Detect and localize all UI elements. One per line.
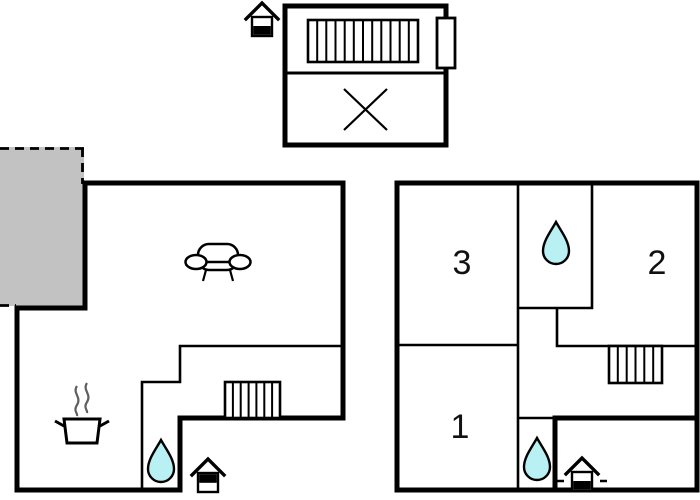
house-door-fill: [199, 474, 217, 483]
terrace-area: [0, 147, 84, 306]
first-floor-plan: 3 2 1: [397, 183, 697, 491]
house-door-fill: [253, 26, 271, 35]
entrance-house-icon: [192, 459, 224, 492]
outer-walls: [397, 183, 697, 490]
room-label-2: 2: [648, 244, 667, 282]
room-label-1: 1: [451, 408, 470, 446]
room-label-3: 3: [453, 244, 472, 282]
pot-body: [64, 419, 100, 443]
ground-floor-plan: [0, 147, 343, 492]
staircase-icon: [308, 20, 418, 62]
sofa-armrest-left: [186, 255, 207, 269]
terrace-fill: [0, 147, 84, 306]
staircase-icon: [609, 346, 662, 383]
floor-plan-page: 3 2 1: [0, 0, 700, 500]
sofa-armrest-right: [230, 255, 251, 269]
upper-floor-plan: [246, 3, 455, 145]
house-door-fill: [573, 481, 591, 490]
window-icon: [437, 18, 455, 68]
entrance-house-icon: [246, 3, 278, 36]
staircase-icon: [225, 382, 280, 418]
